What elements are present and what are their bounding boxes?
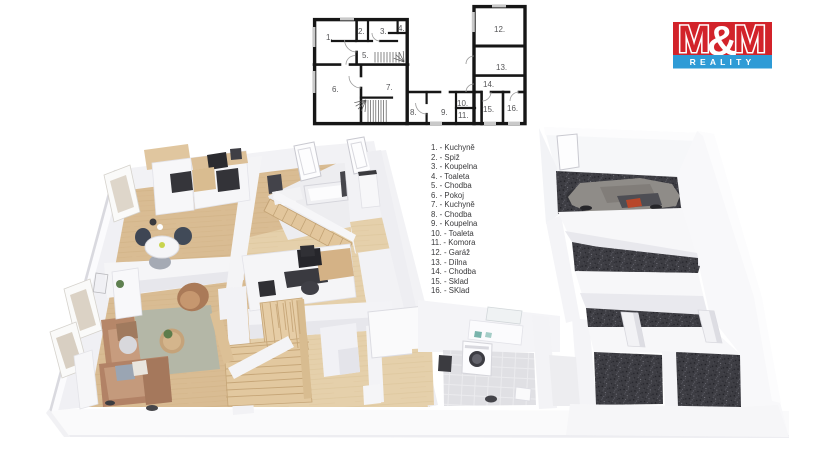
svg-text:10.: 10. [457,99,468,108]
svg-text:8.: 8. [410,108,417,117]
svg-text:REALITY: REALITY [690,57,756,67]
svg-text:14.: 14. [483,80,494,89]
svg-text:4.: 4. [398,24,405,33]
svg-text:6.: 6. [332,85,339,94]
svg-text:11.: 11. [458,111,469,120]
svg-text:5.: 5. [362,51,369,60]
svg-text:M: M [678,18,710,61]
svg-text:M: M [734,18,766,61]
svg-text:1.: 1. [326,33,333,42]
svg-text:16.: 16. [507,104,518,113]
svg-text:3.: 3. [380,27,387,36]
svg-text:13.: 13. [496,63,507,72]
svg-text:9.: 9. [441,108,448,117]
svg-text:7.: 7. [386,83,393,92]
svg-text:12.: 12. [494,25,505,34]
svg-text:15.: 15. [483,105,494,114]
svg-text:2.: 2. [358,27,365,36]
